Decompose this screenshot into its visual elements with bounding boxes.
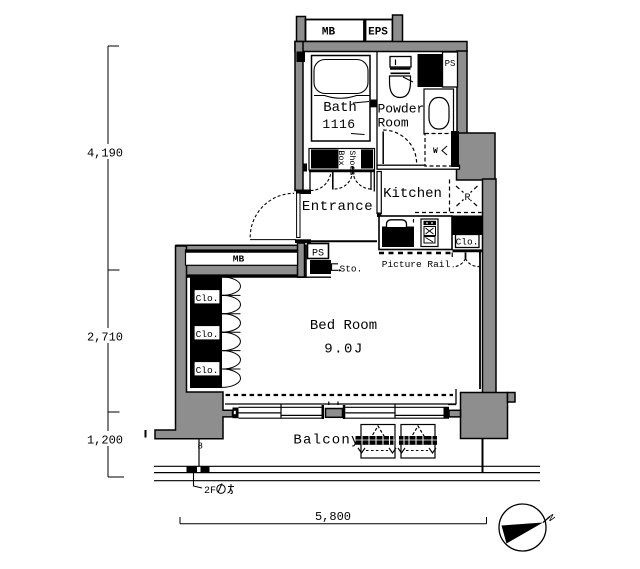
svg-text:W: W — [433, 147, 438, 156]
svg-text:5,800: 5,800 — [315, 510, 351, 524]
svg-text:1,200: 1,200 — [87, 434, 123, 448]
svg-text:R: R — [464, 193, 470, 204]
svg-text:PS: PS — [445, 59, 456, 69]
svg-text:Room: Room — [378, 116, 409, 131]
svg-text:2F: 2F — [204, 486, 216, 497]
svg-text:Balcony: Balcony — [293, 433, 360, 449]
svg-text:9.0J: 9.0J — [324, 342, 364, 358]
svg-text:Box: Box — [336, 150, 346, 165]
svg-text:4,190: 4,190 — [87, 147, 123, 161]
svg-text:Bed Room: Bed Room — [310, 318, 377, 334]
svg-text:Entrance: Entrance — [302, 199, 373, 215]
svg-text:Clo.: Clo. — [196, 329, 219, 340]
svg-text:Kitchen: Kitchen — [383, 186, 442, 202]
svg-text:MB: MB — [322, 27, 336, 39]
svg-text:Clo.: Clo. — [456, 237, 479, 248]
svg-text:PS: PS — [312, 249, 324, 260]
svg-text:1116: 1116 — [322, 117, 355, 132]
svg-text:EPS: EPS — [368, 27, 388, 39]
svg-text:8: 8 — [198, 442, 203, 452]
svg-text:Clo.: Clo. — [196, 365, 219, 376]
svg-text:Sto.: Sto. — [340, 264, 363, 275]
svg-text:MB: MB — [233, 254, 245, 265]
svg-text:Powder: Powder — [378, 102, 425, 117]
svg-text:Clo.: Clo. — [196, 293, 219, 304]
svg-text:Picture Rail: Picture Rail — [382, 259, 451, 270]
svg-text:2,710: 2,710 — [87, 331, 123, 345]
svg-text:Bath: Bath — [323, 100, 357, 116]
